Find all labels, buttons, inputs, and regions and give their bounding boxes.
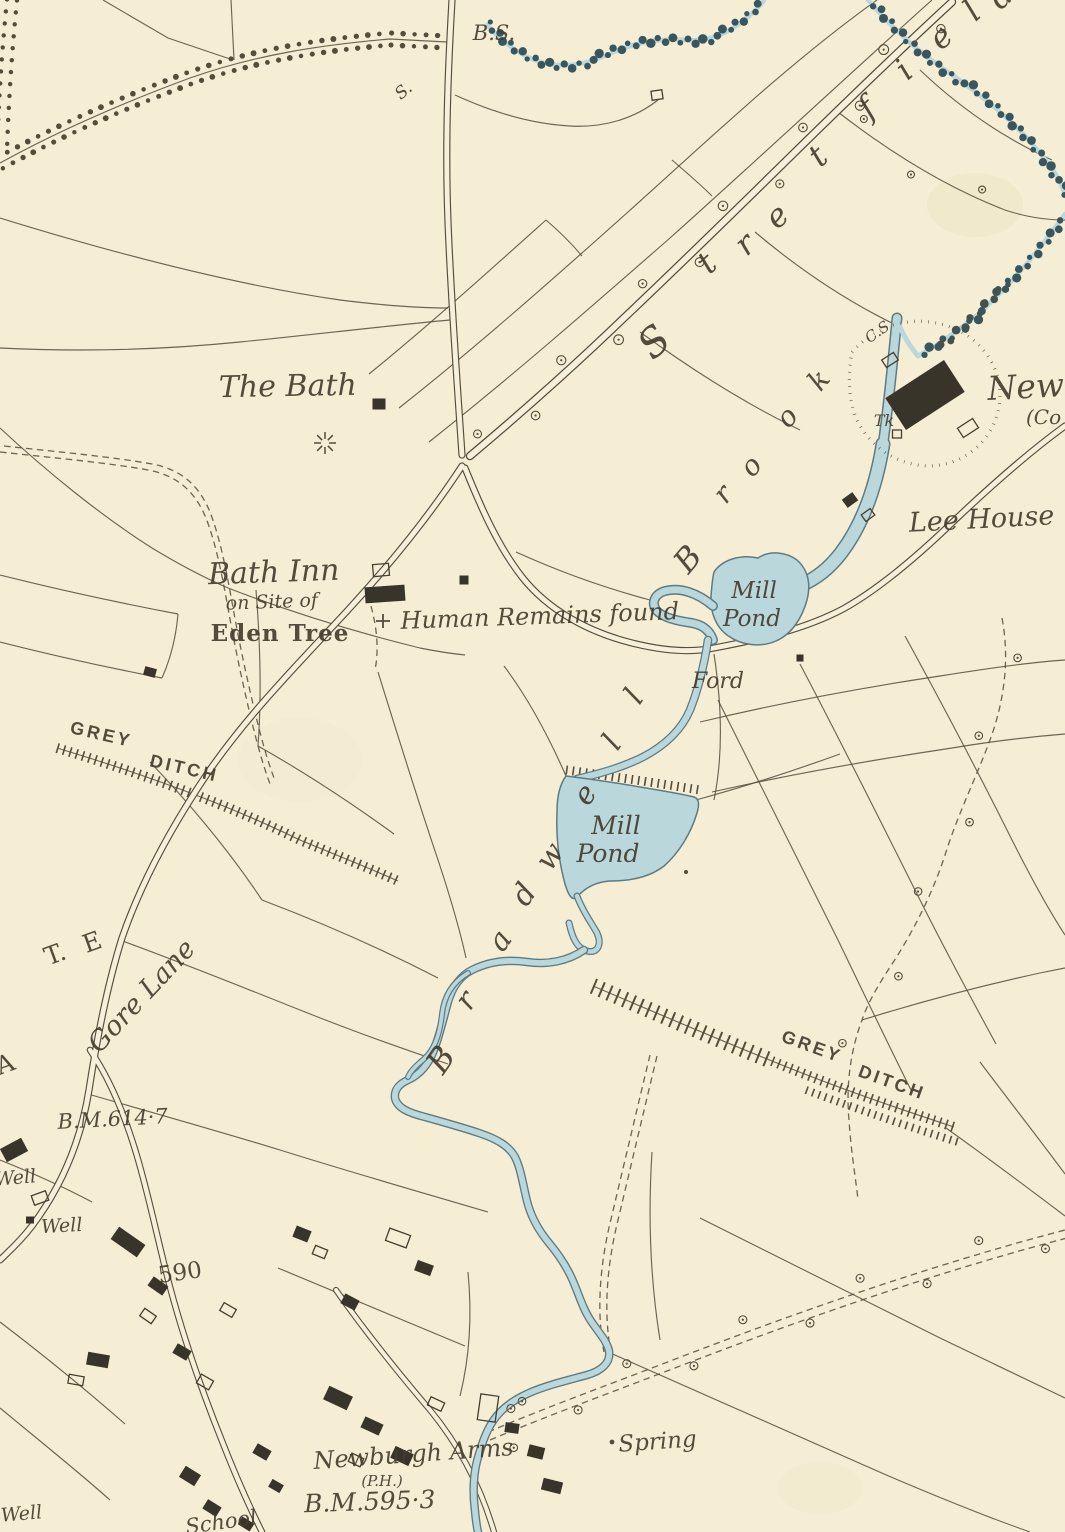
- map-canvas[interactable]: B.S.S.StretfieldThe BathBath Innon Site …: [0, 0, 1065, 1532]
- paper-grain-overlay: [0, 0, 1065, 1532]
